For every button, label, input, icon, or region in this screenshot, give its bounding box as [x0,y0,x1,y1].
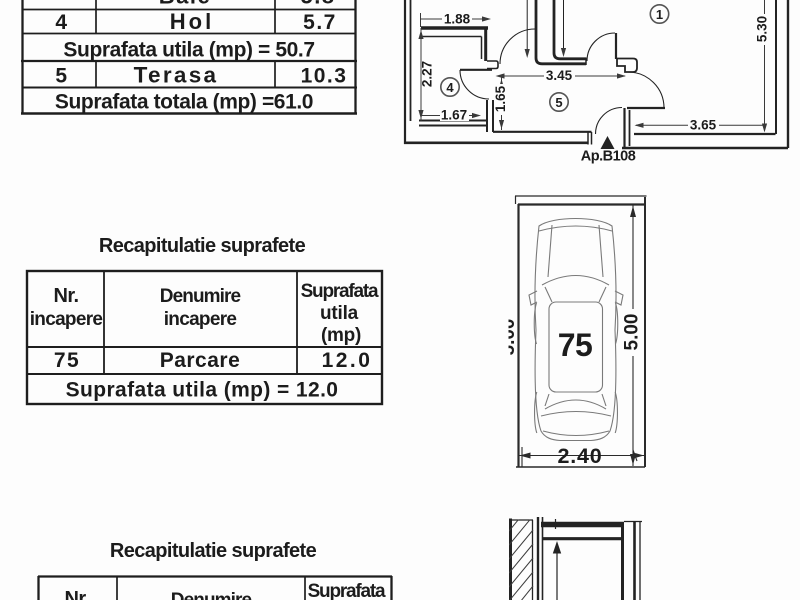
svg-text:incapere: incapere [164,309,237,330]
svg-text:5.30: 5.30 [755,16,770,42]
svg-text:4: 4 [55,11,68,34]
svg-text:3.65: 3.65 [690,118,717,133]
svg-text:75: 75 [54,349,80,372]
svg-text:Suprafata utila (mp) = 50.7: Suprafata utila (mp) = 50.7 [63,39,314,62]
svg-text:1.65: 1.65 [493,85,508,112]
svg-text:Suprafata: Suprafata [308,581,386,600]
svg-text:Nr.: Nr. [65,588,90,600]
svg-text:Hol: Hol [170,9,214,34]
svg-text:4: 4 [446,80,454,95]
svg-text:Baie: Baie [159,0,211,9]
svg-text:5: 5 [55,65,68,88]
svg-text:5: 5 [555,95,562,110]
svg-text:12.0: 12.0 [322,349,373,372]
svg-text:Suprafata utila (mp) = 12.0: Suprafata utila (mp) = 12.0 [66,379,339,402]
svg-text:Parcare: Parcare [160,349,241,372]
svg-text:75: 75 [558,327,593,363]
svg-text:incapere: incapere [30,309,103,330]
svg-text:2.40: 2.40 [557,444,602,468]
svg-text:(mp): (mp) [321,325,361,346]
svg-text:1: 1 [656,7,663,22]
svg-text:Suprafata: Suprafata [301,281,379,302]
svg-text:1.67: 1.67 [441,108,467,123]
svg-text:1.88: 1.88 [444,12,471,27]
svg-text:Suprafata totala (mp) =61.0: Suprafata totala (mp) =61.0 [55,91,313,114]
svg-text:Denumire: Denumire [160,286,241,307]
svg-text:utila: utila [320,303,359,324]
svg-text:Denumire: Denumire [171,590,252,600]
svg-text:3.45: 3.45 [546,68,573,83]
svg-text:5.8: 5.8 [300,0,335,9]
svg-text:5.00: 5.00 [622,314,643,351]
svg-text:Ap.B108: Ap.B108 [581,149,636,165]
svg-text:Recapitulatie suprafete: Recapitulatie suprafete [110,540,317,562]
svg-text:Nr.: Nr. [54,285,79,307]
svg-text:2.27: 2.27 [420,61,435,87]
svg-text:10.3: 10.3 [301,65,348,88]
svg-text:Recapitulatie suprafete: Recapitulatie suprafete [99,235,306,257]
svg-text:Terasa: Terasa [134,63,219,88]
svg-text:5.7: 5.7 [303,11,337,34]
